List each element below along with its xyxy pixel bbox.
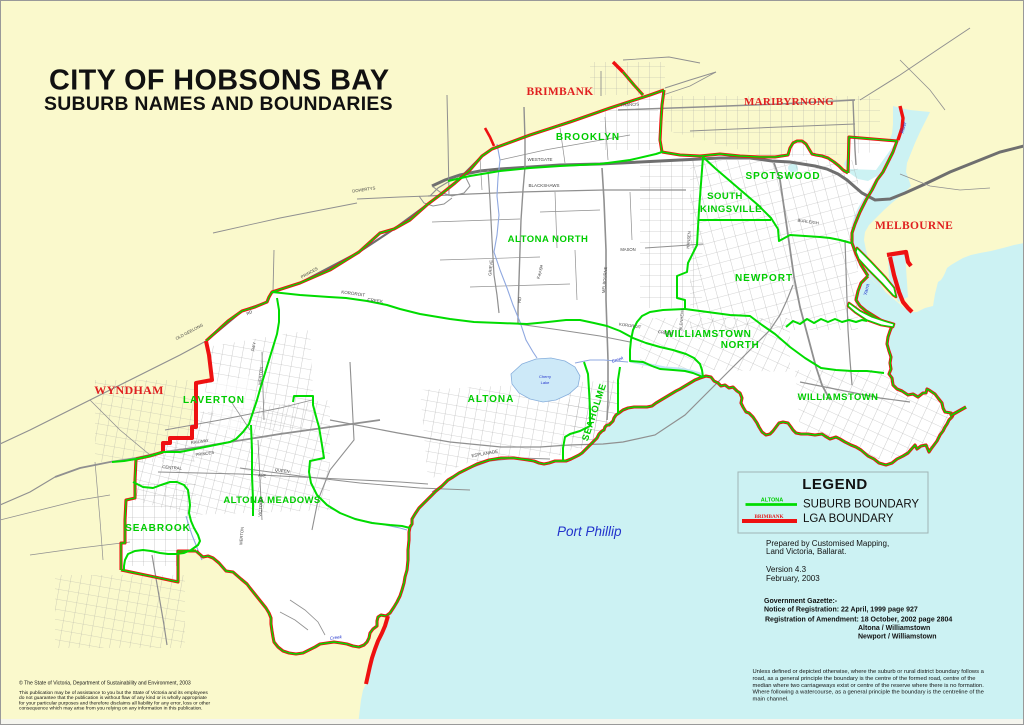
svg-text:LEGEND: LEGEND — [802, 476, 868, 493]
svg-text:© The State of Victoria, Depar: © The State of Victoria, Department of S… — [19, 680, 191, 687]
svg-text:Unless defined or depicted oth: Unless defined or depicted otherwise, wh… — [753, 669, 985, 675]
svg-text:SUBURB BOUNDARY: SUBURB BOUNDARY — [803, 499, 919, 511]
svg-text:This publication may be of ass: This publication may be of assistance to… — [19, 690, 208, 696]
svg-text:MARIBYRNONG: MARIBYRNONG — [744, 96, 834, 108]
svg-text:Cherry: Cherry — [539, 374, 551, 379]
svg-text:main channel.: main channel. — [753, 697, 789, 703]
svg-text:BROOKLYN: BROOKLYN — [556, 132, 620, 143]
svg-text:LAVERTON: LAVERTON — [183, 395, 245, 406]
svg-text:NORTH: NORTH — [721, 340, 760, 351]
svg-text:Registration of Amendment: 18: Registration of Amendment: 18 October, 2… — [765, 617, 952, 624]
svg-text:BRIMBANK: BRIMBANK — [527, 86, 594, 98]
svg-text:WYNDHAM: WYNDHAM — [94, 383, 163, 397]
svg-text:Lake: Lake — [541, 380, 550, 385]
svg-text:NEWPORT: NEWPORT — [735, 273, 793, 284]
svg-text:ALTONA MEADOWS: ALTONA MEADOWS — [223, 495, 320, 506]
svg-text:Version 4.3: Version 4.3 — [766, 565, 807, 574]
svg-text:WESTGATE: WESTGATE — [528, 157, 553, 162]
svg-text:MASON: MASON — [620, 247, 635, 252]
svg-text:Land Victoria, Ballarat.: Land Victoria, Ballarat. — [766, 547, 846, 556]
svg-text:ALTONA: ALTONA — [468, 394, 515, 405]
svg-text:BLACKSHAWS: BLACKSHAWS — [528, 183, 559, 188]
svg-text:Notice of Registration: 22 Apr: Notice of Registration: 22 April, 1999 p… — [764, 607, 918, 614]
svg-text:LGA BOUNDARY: LGA BOUNDARY — [803, 513, 894, 525]
svg-text:AVE: AVE — [258, 473, 267, 479]
svg-text:median where two carriageways: median where two carriageways exist or c… — [753, 683, 985, 689]
svg-text:Newport / Williamstown: Newport / Williamstown — [858, 634, 937, 641]
svg-text:BRIMBANK: BRIMBANK — [754, 514, 783, 520]
svg-text:FRANCIS: FRANCIS — [621, 102, 640, 108]
svg-text:Altona / Williamstown: Altona / Williamstown — [858, 625, 930, 632]
svg-text:Port Phillip: Port Phillip — [557, 524, 622, 539]
svg-text:ALTONA: ALTONA — [761, 498, 783, 504]
svg-text:ALTONA NORTH: ALTONA NORTH — [508, 234, 589, 245]
svg-text:Where following a watercourse,: Where following a watercourse, as a gene… — [753, 690, 984, 696]
svg-text:for your particular purposes a: for your particular purposes and therefo… — [19, 700, 210, 706]
svg-text:do not guarantee that the publ: do not guarantee that the publication is… — [19, 695, 207, 701]
svg-text:consequence which may arise fr: consequence which may arise from you rel… — [19, 706, 203, 712]
svg-text:February, 2003: February, 2003 — [766, 574, 820, 583]
svg-text:Government Gazette:-: Government Gazette:- — [764, 598, 838, 605]
svg-text:KINGSVILLE: KINGSVILLE — [700, 204, 762, 215]
svg-text:SUBURB NAMES AND BOUNDARIES: SUBURB NAMES AND BOUNDARIES — [44, 93, 393, 115]
svg-text:road, as a general principle t: road, as a general principle the boundar… — [753, 676, 976, 682]
svg-text:MELBOURNE: MELBOURNE — [875, 220, 953, 232]
svg-text:SPOTSWOOD: SPOTSWOOD — [745, 171, 820, 182]
svg-text:SEABROOK: SEABROOK — [125, 523, 191, 534]
svg-text:SOUTH: SOUTH — [707, 191, 743, 202]
svg-text:CITY OF HOBSONS BAY: CITY OF HOBSONS BAY — [49, 65, 389, 97]
svg-text:RD: RD — [517, 297, 523, 303]
svg-text:WILLIAMSTOWN: WILLIAMSTOWN — [798, 391, 879, 402]
